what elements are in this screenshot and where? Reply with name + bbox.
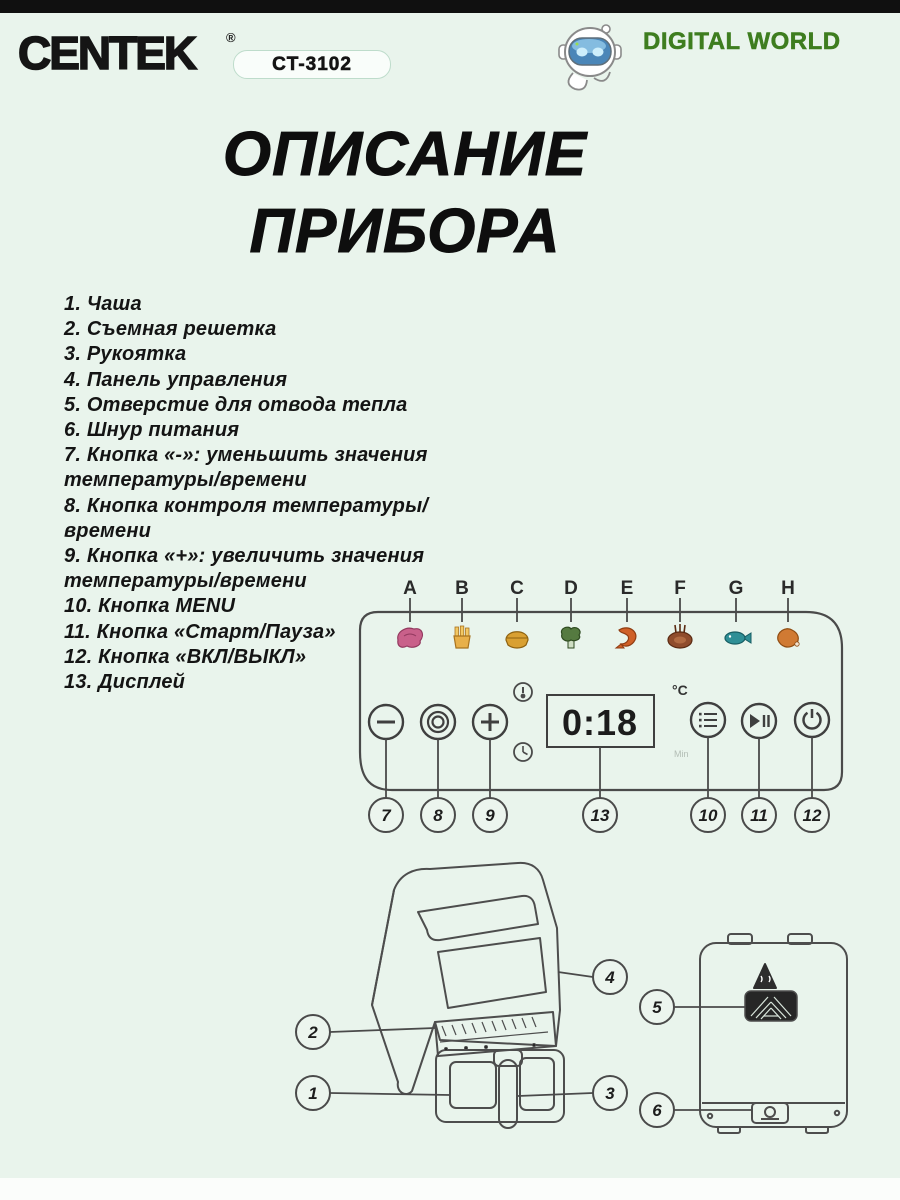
callout-2: 2 <box>307 1023 318 1042</box>
callout-11: 11 <box>750 806 768 825</box>
minus-button-icon <box>369 705 403 739</box>
hot-surface-warning-icon <box>754 964 776 988</box>
panel-outline <box>360 612 842 790</box>
thermometer-icon <box>514 683 532 701</box>
callout-3: 3 <box>605 1084 615 1103</box>
registered-mark: ® <box>226 30 236 45</box>
top-panel-outline <box>418 896 538 940</box>
basket-window-left <box>450 1062 496 1108</box>
list-item: 4. Панель управления <box>64 368 428 393</box>
list-item-wrap: времени <box>64 519 428 544</box>
callout-7: 7 <box>381 806 392 825</box>
back-body-outline <box>700 943 847 1127</box>
panel-callouts: 7 8 9 13 10 11 12 <box>369 798 829 832</box>
mode-letter: B <box>455 578 469 599</box>
basket-window-right <box>520 1058 554 1110</box>
temp-time-dial-icon <box>421 705 455 739</box>
mode-letter: G <box>729 578 744 599</box>
vent-grille <box>745 991 797 1021</box>
hood-window-outline <box>438 938 546 1008</box>
callout-9: 9 <box>485 806 495 825</box>
mode-letter: E <box>621 578 634 599</box>
list-item: 9. Кнопка «+»: увеличить значения <box>64 544 428 569</box>
mode-letter: H <box>781 578 795 599</box>
page-title-line2: ПРИБОРА <box>0 193 810 270</box>
plus-button-icon <box>473 705 507 739</box>
steak-icon <box>668 624 692 648</box>
mode-letter: F <box>674 578 686 599</box>
display-value: 0:18 <box>562 702 638 743</box>
brand-logo: CENTEK <box>18 26 195 80</box>
celsius-label: °C <box>672 682 688 698</box>
clock-icon <box>514 743 532 761</box>
callout-1: 1 <box>308 1084 317 1103</box>
list-item: 7. Кнопка «-»: уменьшить значения <box>64 443 428 468</box>
list-item: 8. Кнопка контроля температуры/ <box>64 494 428 519</box>
control-panel-diagram: A B C D E F G H <box>330 570 890 840</box>
callout-4: 4 <box>604 968 615 987</box>
manual-page: { "header": { "brand": "CENTEK", "regist… <box>0 0 900 1200</box>
air-fryer-front-view: 4 2 1 3 <box>290 860 640 1150</box>
list-item-wrap: температуры/времени <box>64 468 428 493</box>
top-black-bar <box>0 0 900 13</box>
fries-icon <box>454 626 470 648</box>
robot-mascot-icon <box>556 20 624 94</box>
model-number: CT-3102 <box>272 54 352 76</box>
meat-icon <box>398 628 423 647</box>
chicken-wing-icon <box>778 629 799 647</box>
page-title-line1: ОПИСАНИЕ <box>0 116 810 193</box>
cord-holder <box>752 1103 788 1123</box>
mode-letter: C <box>510 578 524 599</box>
list-item: 1. Чаша <box>64 292 428 317</box>
power-button-icon <box>795 703 829 737</box>
callout-6: 6 <box>652 1101 662 1120</box>
play-pause-button-icon <box>742 704 776 738</box>
pie-icon <box>506 632 528 648</box>
handle-bracket <box>494 1050 522 1066</box>
broccoli-icon <box>561 627 580 648</box>
list-item: 6. Шнур питания <box>64 418 428 443</box>
callout-8: 8 <box>433 806 443 825</box>
model-badge: CT-3102 <box>233 50 391 79</box>
list-item: 3. Рукоятка <box>64 342 428 367</box>
min-label: Min <box>674 749 689 759</box>
shrimp-icon <box>616 628 636 648</box>
callout-13: 13 <box>591 806 610 825</box>
bottom-white-strip <box>0 1178 900 1200</box>
callout-5: 5 <box>652 998 662 1017</box>
mode-letter: A <box>403 578 417 599</box>
partner-logo-text: DIGITAL WORLD <box>643 28 841 56</box>
menu-button-icon <box>691 703 725 737</box>
callout-12: 12 <box>803 806 822 825</box>
air-fryer-back-view: 5 6 <box>630 920 890 1150</box>
handle-bar <box>499 1060 517 1128</box>
callout-10: 10 <box>699 806 718 825</box>
fish-icon <box>725 632 751 644</box>
mode-letter: D <box>564 578 578 599</box>
page-title: ОПИСАНИЕ ПРИБОРА <box>0 116 810 270</box>
list-item: 5. Отверстие для отвода тепла <box>64 393 428 418</box>
list-item: 2. Съемная решетка <box>64 317 428 342</box>
